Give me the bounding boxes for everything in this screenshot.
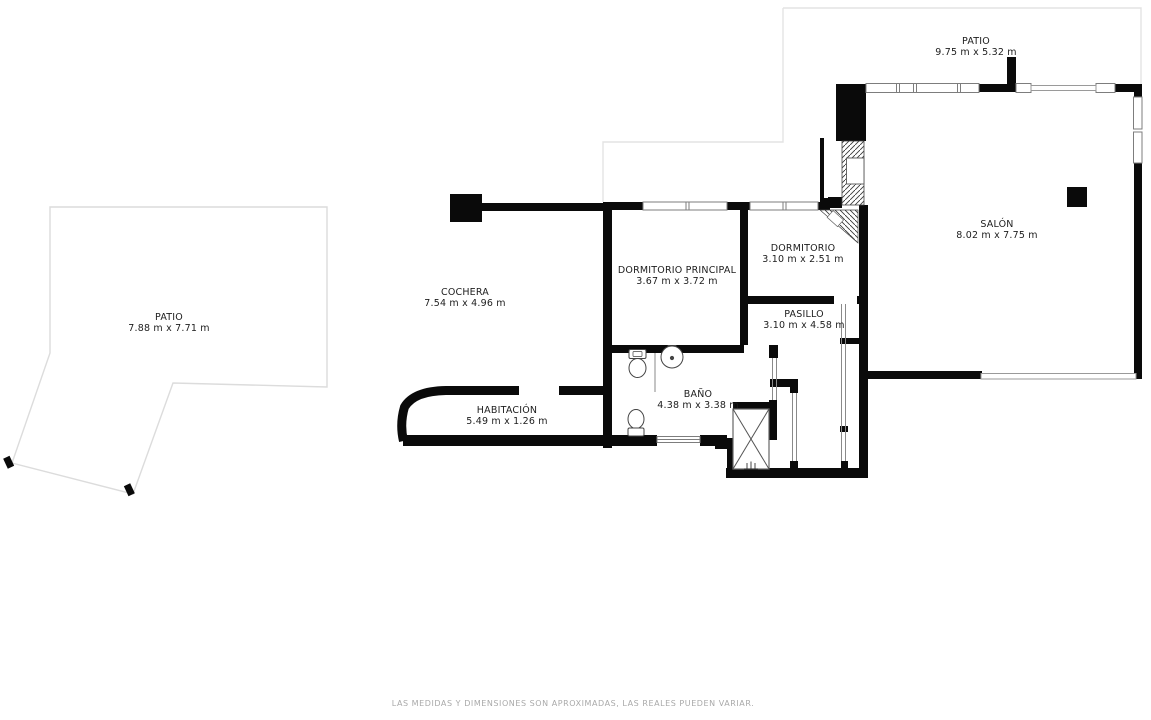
patio-post-icon: [3, 456, 14, 469]
room-name: PATIO: [935, 36, 1017, 47]
room-name: PATIO: [128, 312, 210, 323]
room-label-patio-top: PATIO 9.75 m x 5.32 m: [935, 36, 1017, 58]
toilet-icon: [628, 410, 644, 437]
patio-outline-top: [603, 8, 1141, 202]
disclaimer-text: LAS MEDIDAS Y DIMENSIONES SON APROXIMADA…: [392, 699, 755, 708]
room-label-dormitorio: DORMITORIO 3.10 m x 2.51 m: [762, 243, 844, 265]
room-dims: 8.02 m x 7.75 m: [956, 230, 1038, 241]
shower-icon: [733, 409, 769, 469]
room-name: BAÑO: [657, 389, 739, 400]
room-dims: 3.67 m x 3.72 m: [618, 276, 736, 287]
floor-plan-page: PATIO 9.75 m x 5.32 m SALÓN 8.02 m x 7.7…: [0, 0, 1151, 720]
room-dims: 4.38 m x 3.38 m: [657, 400, 739, 411]
floor-plan: [0, 0, 1151, 720]
room-label-bano: BAÑO 4.38 m x 3.38 m: [657, 389, 739, 411]
sink-icon: [661, 346, 683, 369]
room-dims: 5.49 m x 1.26 m: [466, 416, 548, 427]
room-name: SALÓN: [956, 219, 1038, 230]
room-label-salon: SALÓN 8.02 m x 7.75 m: [956, 219, 1038, 241]
room-name: DORMITORIO PRINCIPAL: [618, 265, 736, 276]
pillar: [450, 194, 482, 222]
patio-outline-left: [3, 207, 327, 496]
room-dims: 7.88 m x 7.71 m: [128, 323, 210, 334]
room-label-pasillo: PASILLO 3.10 m x 4.58 m: [763, 309, 845, 331]
room-dims: 3.10 m x 4.58 m: [763, 320, 845, 331]
room-label-patio-left: PATIO 7.88 m x 7.71 m: [128, 312, 210, 334]
room-dims: 7.54 m x 4.96 m: [424, 298, 506, 309]
room-label-habitacion: HABITACIÓN 5.49 m x 1.26 m: [466, 405, 548, 427]
room-name: PASILLO: [763, 309, 845, 320]
chimney-hatch: [842, 141, 864, 205]
room-label-cochera: COCHERA 7.54 m x 4.96 m: [424, 287, 506, 309]
corner-hatch: [820, 210, 858, 243]
room-dims: 9.75 m x 5.32 m: [935, 47, 1017, 58]
room-dims: 3.10 m x 2.51 m: [762, 254, 844, 265]
toilet-icon: [629, 350, 646, 378]
salon-column: [1067, 187, 1087, 207]
room-label-dormitorio-principal: DORMITORIO PRINCIPAL 3.67 m x 3.72 m: [618, 265, 736, 287]
room-name: HABITACIÓN: [466, 405, 548, 416]
room-name: DORMITORIO: [762, 243, 844, 254]
room-name: COCHERA: [424, 287, 506, 298]
